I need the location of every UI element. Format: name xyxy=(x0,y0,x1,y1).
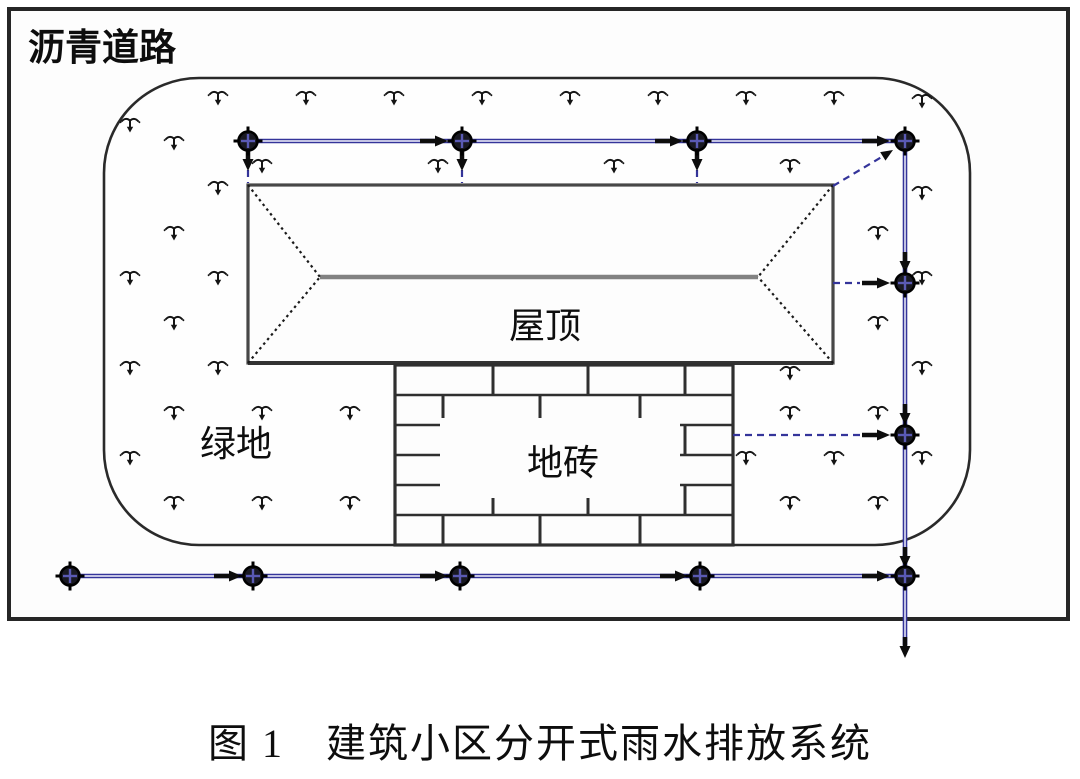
green-space-label: 绿地 xyxy=(200,424,272,464)
flow-arrow-icon xyxy=(900,637,911,658)
tiles-label: 地砖 xyxy=(527,443,599,483)
site-plan-diagram: 沥青道路 绿地 屋顶 地砖 图 1 建筑小区分开式雨水排放系统 xyxy=(0,0,1080,779)
figure-caption: 图 1 建筑小区分开式雨水排放系统 xyxy=(208,721,872,766)
roof-label: 屋顶 xyxy=(509,306,581,346)
figure: 沥青道路 绿地 屋顶 地砖 图 1 建筑小区分开式雨水排放系统 xyxy=(0,0,1080,779)
flow-arrow-head xyxy=(900,646,911,658)
road-label: 沥青道路 xyxy=(28,27,177,69)
